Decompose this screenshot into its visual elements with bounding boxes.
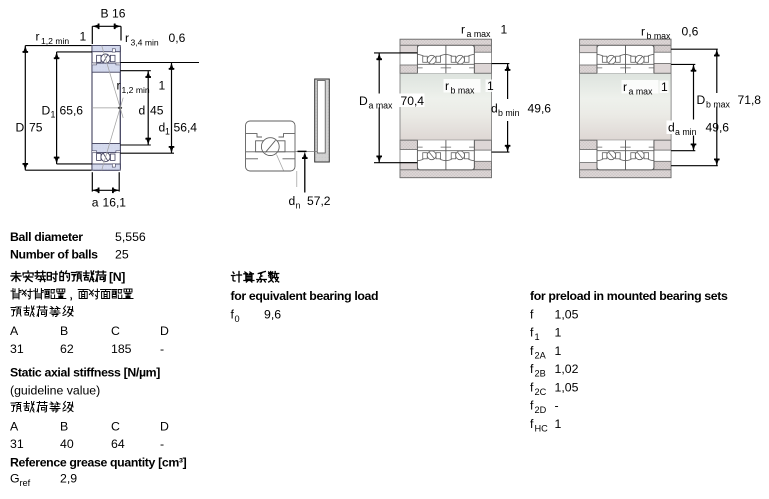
svg-text:r: r	[641, 25, 645, 39]
svg-text:70,4: 70,4	[401, 94, 425, 108]
svg-text:C: C	[111, 420, 120, 434]
svg-text:ref: ref	[20, 478, 31, 488]
svg-text:1: 1	[159, 79, 166, 93]
svg-text:d: d	[491, 102, 498, 116]
svg-text:D: D	[160, 420, 169, 434]
svg-text:3,4 min: 3,4 min	[131, 38, 159, 48]
svg-text:f: f	[530, 381, 534, 395]
svg-text:f: f	[530, 308, 534, 322]
svg-text:n: n	[296, 201, 301, 211]
svg-text:Ball diameter: Ball diameter	[10, 230, 83, 244]
svg-text:d: d	[139, 104, 146, 118]
svg-text:b max: b max	[647, 31, 672, 41]
svg-text:40: 40	[60, 437, 74, 451]
svg-text:Number of balls: Number of balls	[10, 248, 98, 262]
svg-text:1: 1	[535, 332, 540, 342]
svg-text:65,6: 65,6	[60, 104, 84, 118]
svg-text:G: G	[10, 472, 20, 486]
svg-text:-: -	[160, 342, 164, 356]
svg-text:f: f	[530, 417, 534, 431]
svg-text:64: 64	[111, 437, 125, 451]
svg-text:d: d	[289, 194, 296, 208]
svg-text:[N]: [N]	[109, 270, 125, 284]
svg-text:B: B	[60, 420, 68, 434]
svg-text:for equivalent bearing load: for equivalent bearing load	[231, 289, 379, 303]
svg-text:A: A	[10, 420, 19, 434]
svg-text:185: 185	[111, 342, 132, 356]
svg-text:1,02: 1,02	[555, 362, 579, 376]
svg-text:D: D	[697, 93, 706, 107]
svg-text:f: f	[530, 326, 534, 340]
svg-text:f: f	[530, 362, 534, 376]
svg-text:f: f	[530, 399, 534, 413]
svg-text:75: 75	[29, 121, 43, 135]
svg-text:b max: b max	[451, 86, 476, 96]
svg-text:31: 31	[10, 342, 24, 356]
svg-text:d: d	[668, 121, 675, 135]
svg-text:f: f	[530, 344, 534, 358]
svg-text:Reference grease quantity [cm³: Reference grease quantity [cm³]	[10, 456, 187, 470]
svg-text:2C: 2C	[535, 387, 547, 397]
svg-text:5,556: 5,556	[115, 230, 146, 244]
svg-text:-: -	[555, 399, 559, 413]
svg-text:D: D	[359, 94, 368, 108]
svg-text:(guideline value): (guideline value)	[10, 384, 100, 398]
svg-text:b min: b min	[498, 108, 520, 118]
svg-text:71,8: 71,8	[738, 93, 762, 107]
svg-text:for preload in mounted bearing: for preload in mounted bearing sets	[530, 289, 728, 303]
svg-text:r: r	[117, 79, 121, 93]
svg-text:2,9: 2,9	[60, 472, 77, 486]
svg-text:HC: HC	[535, 424, 549, 434]
svg-text:A: A	[10, 324, 19, 338]
svg-text:r: r	[445, 79, 449, 93]
svg-text:31: 31	[10, 437, 24, 451]
svg-text:C: C	[111, 324, 120, 338]
svg-text:1: 1	[501, 23, 508, 37]
svg-text:B: B	[60, 324, 68, 338]
svg-text:Static axial stiffness [N/µm]: Static axial stiffness [N/µm]	[10, 366, 160, 380]
svg-text:r: r	[461, 23, 465, 37]
svg-text:0: 0	[235, 314, 240, 324]
svg-text:B: B	[101, 7, 109, 21]
svg-text:2B: 2B	[535, 369, 546, 379]
svg-text:62: 62	[60, 342, 74, 356]
svg-text:b max: b max	[706, 100, 731, 110]
svg-text:a max: a max	[369, 101, 394, 111]
svg-text:1: 1	[51, 110, 56, 120]
svg-text:56,4: 56,4	[174, 121, 198, 135]
svg-text:57,2: 57,2	[307, 194, 331, 208]
svg-text:a max: a max	[467, 29, 492, 39]
svg-text:1,05: 1,05	[555, 308, 579, 322]
svg-text:1,2 min: 1,2 min	[41, 36, 69, 46]
svg-text:1: 1	[555, 326, 562, 340]
svg-text:1: 1	[487, 79, 494, 93]
svg-text:1,05: 1,05	[555, 381, 579, 395]
svg-text:49,6: 49,6	[528, 102, 552, 116]
svg-text:r: r	[125, 31, 129, 45]
svg-text:D: D	[42, 104, 51, 118]
svg-text:49,6: 49,6	[706, 121, 730, 135]
svg-text:1: 1	[80, 30, 87, 44]
svg-text:45: 45	[150, 104, 164, 118]
svg-text:2A: 2A	[535, 351, 547, 361]
svg-text:1: 1	[555, 417, 562, 431]
svg-text:D: D	[16, 121, 25, 135]
svg-text:1,2 min: 1,2 min	[122, 85, 150, 95]
svg-text:D: D	[160, 324, 169, 338]
svg-text:r: r	[36, 30, 40, 44]
svg-text:2D: 2D	[535, 405, 547, 415]
svg-text:16: 16	[112, 7, 126, 21]
svg-text:a: a	[92, 196, 99, 210]
svg-text:0,6: 0,6	[169, 31, 186, 45]
svg-text:1: 1	[555, 344, 562, 358]
svg-text:9,6: 9,6	[264, 308, 281, 322]
svg-text:25: 25	[115, 248, 129, 262]
svg-text:-: -	[160, 437, 164, 451]
svg-text:0,6: 0,6	[682, 25, 699, 39]
svg-text:1: 1	[661, 80, 668, 94]
svg-text:r: r	[623, 80, 627, 94]
svg-text:16,1: 16,1	[103, 196, 127, 210]
svg-text:1: 1	[165, 127, 170, 137]
svg-text:a max: a max	[629, 87, 654, 97]
svg-text:a min: a min	[675, 127, 697, 137]
